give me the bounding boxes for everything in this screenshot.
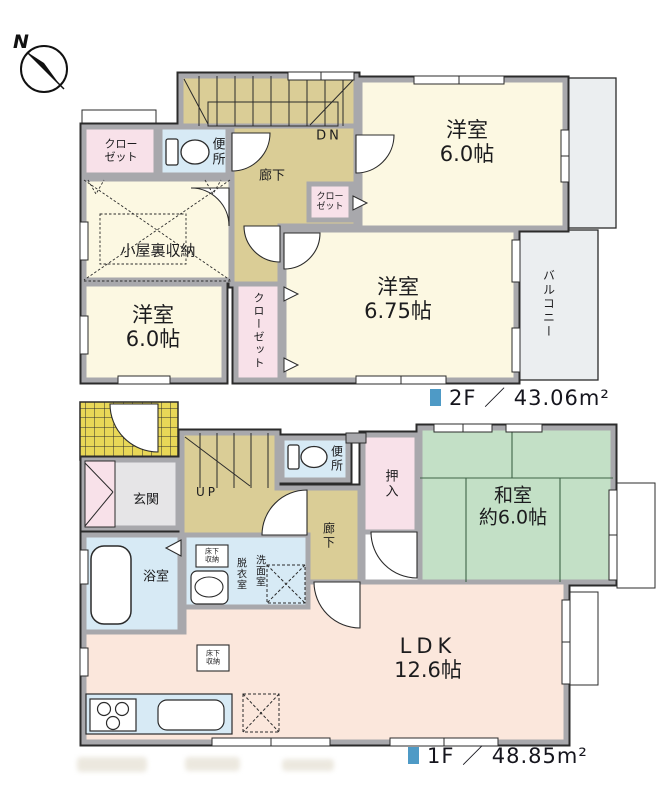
room-name: LDK <box>394 635 462 659</box>
room-label-closet-mid: クロー ゼット <box>316 192 343 213</box>
floor1-marker-icon <box>408 747 419 764</box>
print-smudge <box>185 757 240 771</box>
room-label-bath: 浴室 <box>143 571 169 586</box>
underfloor-label-washroom: 床下 収納 <box>205 548 219 565</box>
room-label-genkan: 玄関 <box>133 494 159 509</box>
balcony-upper <box>566 78 616 228</box>
room-name: 洋室 <box>440 119 494 143</box>
shoe-cabinet <box>85 461 115 527</box>
underfloor-line2: 収納 <box>206 658 220 666</box>
room-label-yoshitsu-675: 洋室 6.75帖 <box>364 276 432 324</box>
sink-icon <box>158 700 224 730</box>
print-smudge <box>77 757 147 772</box>
wall-patch <box>346 433 366 443</box>
room-label-ldk: LDK 12.6帖 <box>394 635 462 683</box>
eaves-right-washitsu <box>617 483 655 588</box>
room-size: 12.6帖 <box>394 659 462 683</box>
room-name: 洋室 <box>364 276 432 300</box>
room-label-yoshitsu-bl: 洋室 6.0帖 <box>126 304 180 352</box>
room-size: 約6.0帖 <box>479 507 547 529</box>
room-label-hall-1f: 廊下 <box>321 522 338 550</box>
toilet-icon-2f <box>166 139 209 165</box>
room-label-attic: 小屋裏収納 <box>120 242 195 259</box>
balcony-2f <box>518 230 598 380</box>
compass-north-label: N <box>13 31 29 53</box>
closet-line2: ゼット <box>105 151 138 164</box>
room-label-closet-tl: クロー ゼット <box>105 138 138 163</box>
room-name: 和室 <box>479 485 547 507</box>
eaves-right-ldk <box>570 592 598 685</box>
room-stairs-2f <box>181 76 356 126</box>
room-size: 6.0帖 <box>126 328 180 352</box>
room-label-senmen: 洗面室 <box>252 555 267 588</box>
room-label-toilet-2f: 便所 <box>208 137 227 167</box>
room-label-washitsu: 和室 約6.0帖 <box>479 485 547 528</box>
room-label-toilet-1f: 便所 <box>329 445 346 473</box>
toilet-icon-1f <box>288 445 327 469</box>
underfloor-line2: 収納 <box>205 556 219 564</box>
kitchen-counter <box>86 694 232 734</box>
floor2-marker-icon <box>430 389 441 406</box>
stairs-up-label: UP <box>196 486 218 500</box>
room-size: 6.75帖 <box>364 300 432 324</box>
underfloor-label-kitchen: 床下 収納 <box>206 650 220 667</box>
room-label-yoshitsu-tr: 洋室 6.0帖 <box>440 119 494 167</box>
room-label-hall-2f: 廊下 <box>259 170 285 185</box>
floor1-area-label: 1F ／ 48.85m² <box>408 740 588 770</box>
closet-line2: ゼット <box>316 202 343 212</box>
room-label-balcony: バルコニー <box>541 269 558 339</box>
room-name: 洋室 <box>126 304 180 328</box>
room-label-oshiire: 押入 <box>381 469 400 499</box>
floor2-area-label: 2F ／ 43.06m² <box>430 382 610 412</box>
closet-line1: クロー <box>316 192 343 202</box>
floor1-area-text: 1F ／ 48.85m² <box>427 740 588 770</box>
room-label-closet-side: クローゼット <box>250 292 266 370</box>
print-smudge <box>282 759 334 771</box>
bathtub-icon <box>91 546 131 624</box>
closet-line1: クロー <box>105 138 138 151</box>
room-size: 6.0帖 <box>440 143 494 167</box>
stairs-down-label: DN <box>316 130 342 145</box>
washbasin-icon <box>191 571 228 604</box>
floorplan-page: N 洋室 6.0帖 洋室 6.75帖 洋室 6.0帖 小屋裏収納 クロー ゼット… <box>0 0 662 794</box>
room-label-datsui: 脱衣室 <box>233 558 248 591</box>
floor2-area-text: 2F ／ 43.06m² <box>449 382 610 412</box>
